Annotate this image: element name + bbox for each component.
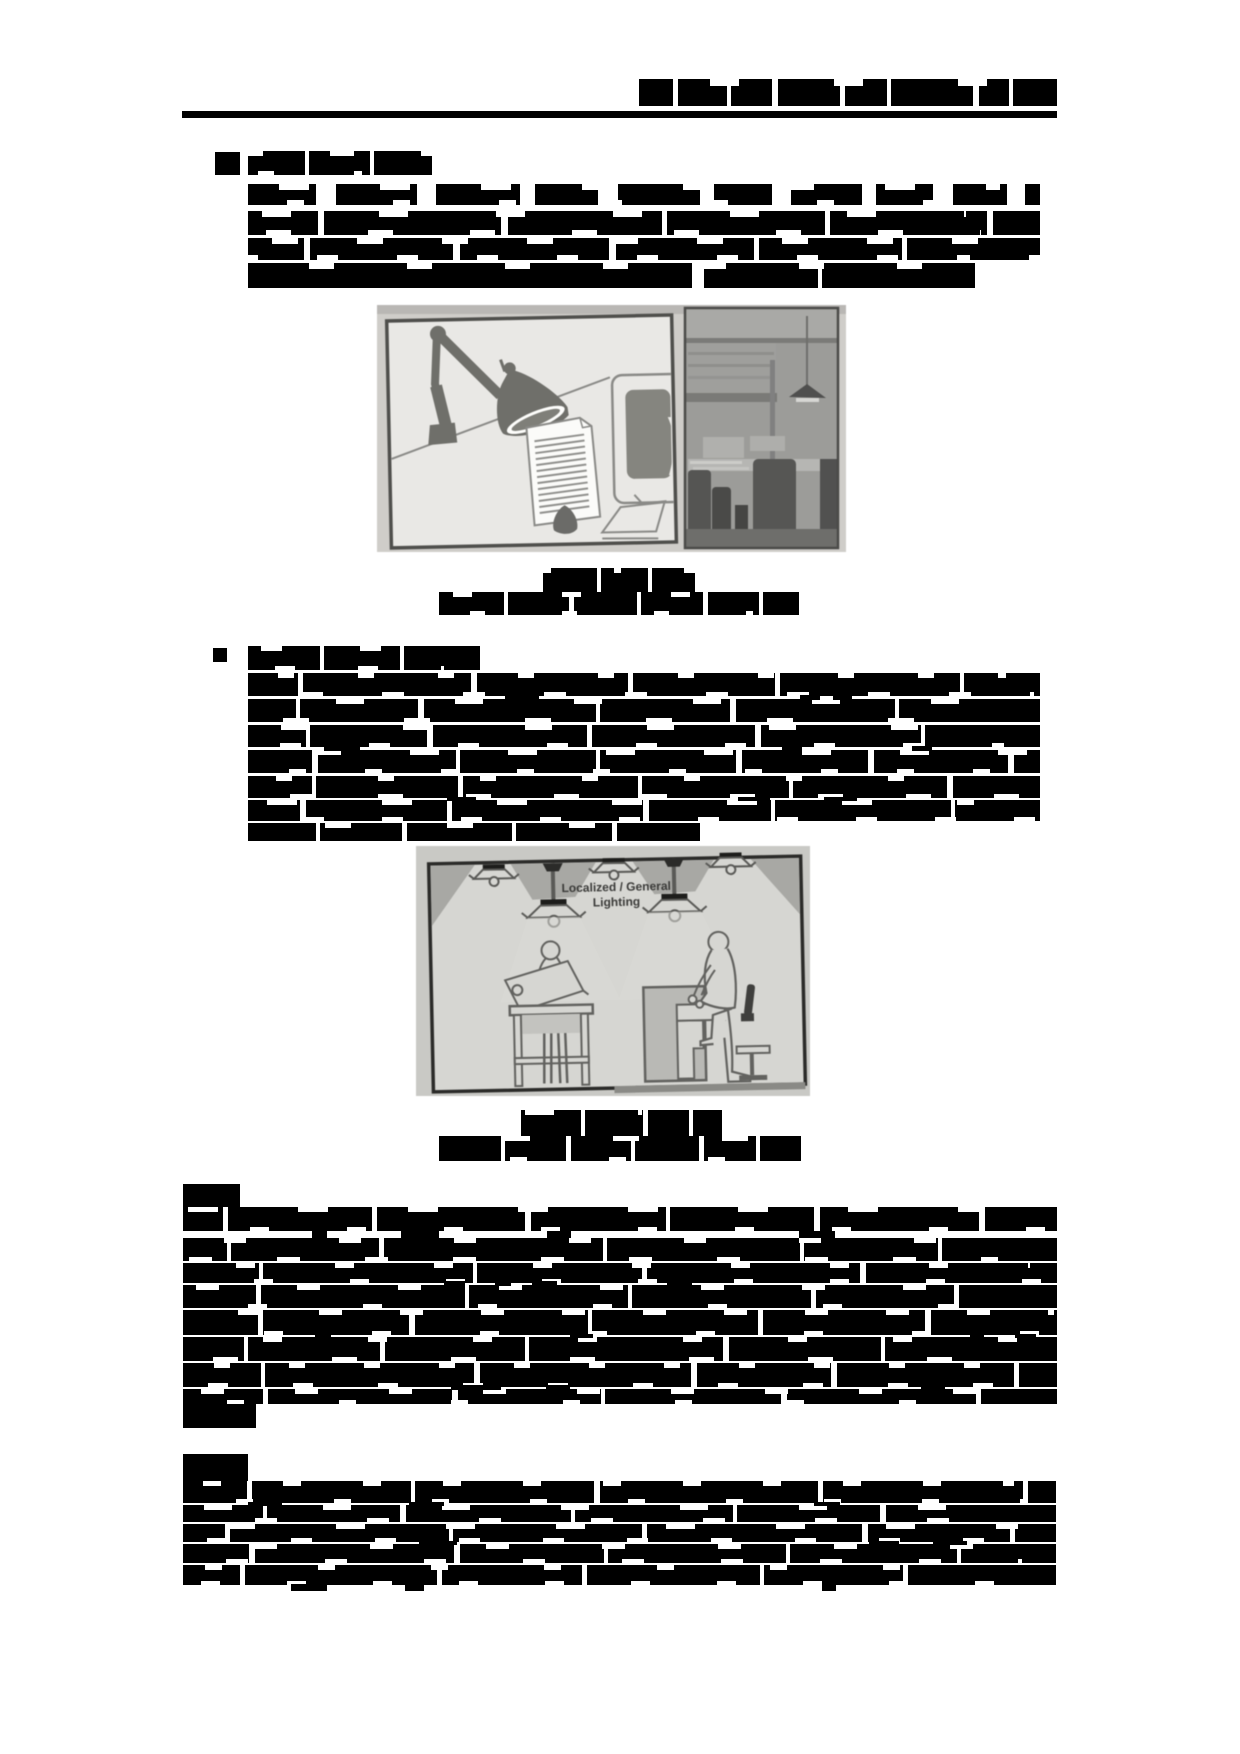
svg-text:Lighting: Lighting — [593, 895, 641, 910]
svg-text:Localized / General: Localized / General — [561, 879, 671, 895]
